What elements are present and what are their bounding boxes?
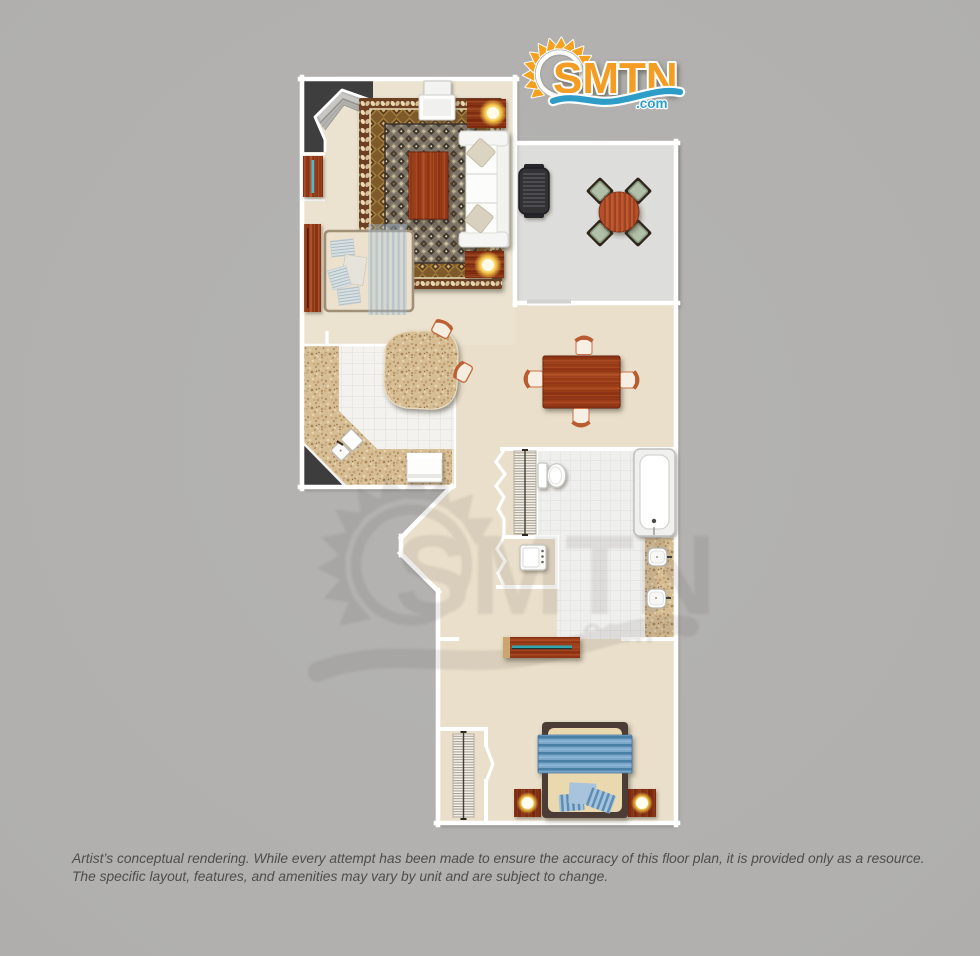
svg-text:.com: .com bbox=[573, 611, 654, 650]
svg-text:The specific layout, features,: The specific layout, features, and ameni… bbox=[72, 869, 608, 884]
svg-text:.com: .com bbox=[636, 96, 668, 111]
svg-text:Artist’s conceptual rendering.: Artist’s conceptual rendering. While eve… bbox=[71, 851, 925, 866]
